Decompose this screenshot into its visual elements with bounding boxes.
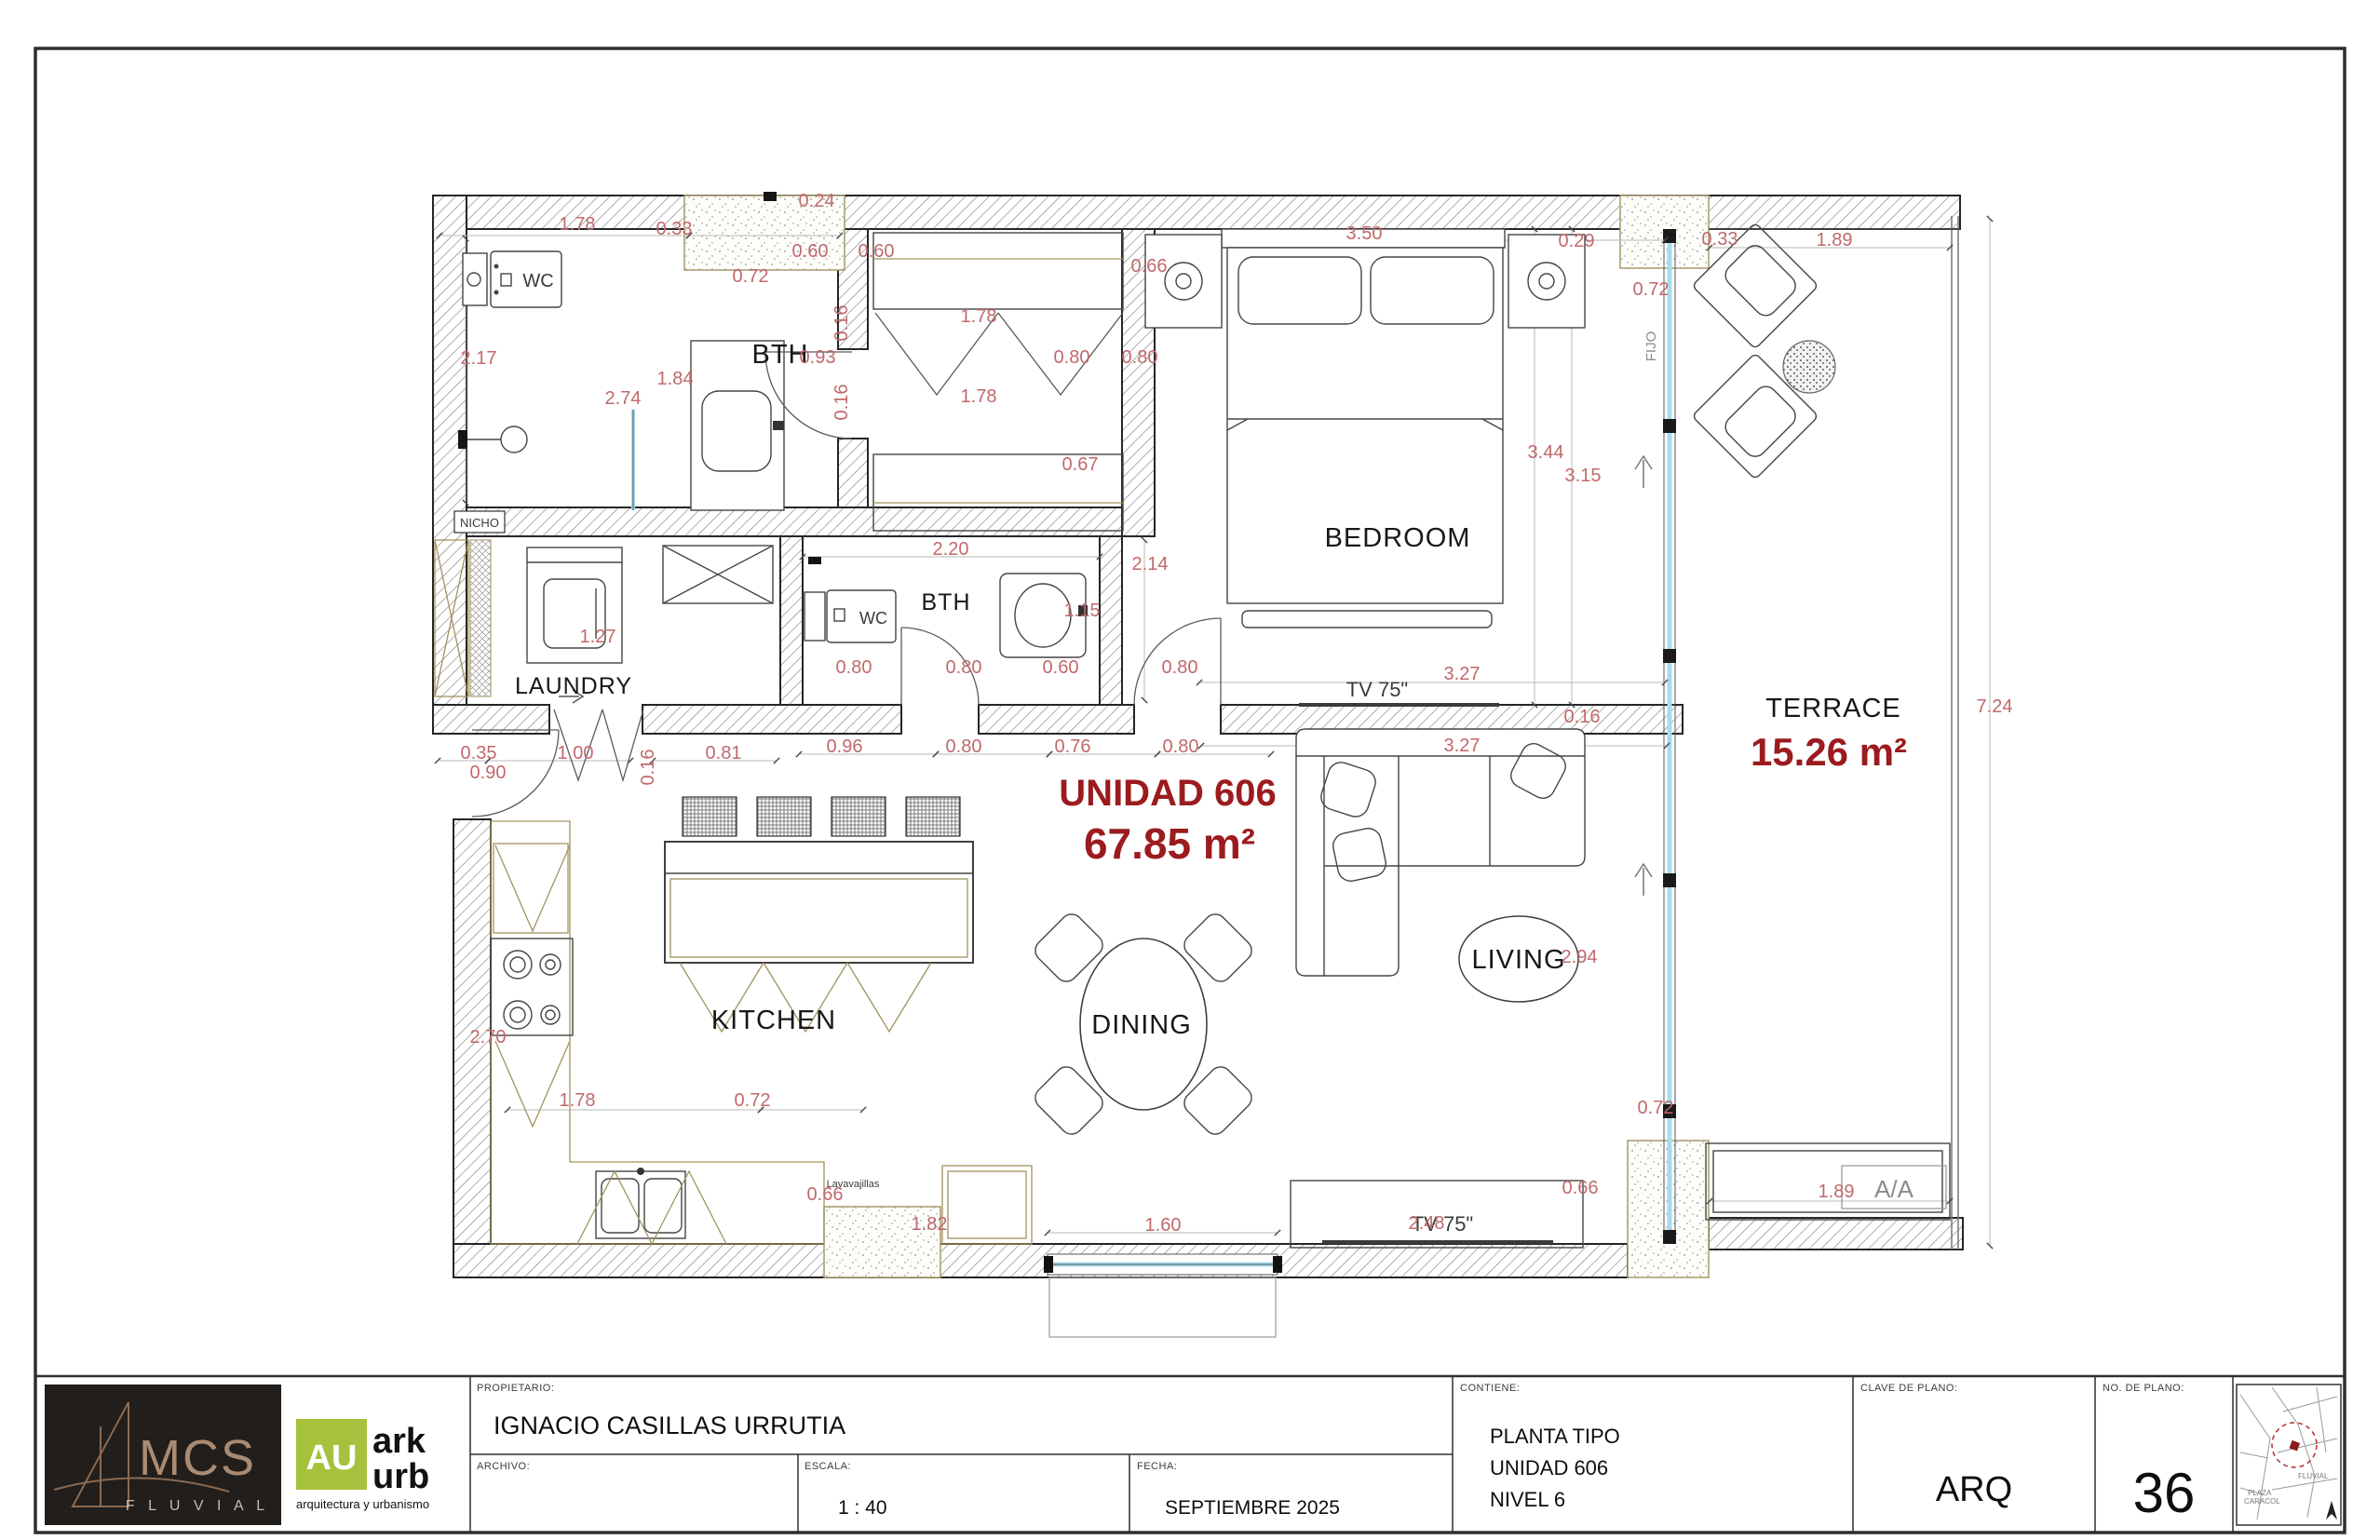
dimension-label: 0.72 [733,266,769,287]
dimension-label: 0.16 [832,385,852,421]
site-map: PLAZA CARACOL FLUVIAL [2237,1385,2341,1525]
mcs-logo: MCS F L U V I A L [45,1385,281,1525]
dimension-label: 0.33 [656,219,693,239]
dimension-label: 0.76 [1055,736,1091,757]
room-label-living: LIVING [1471,945,1565,975]
arkurb-word-2: urb [372,1457,429,1496]
numero-label: NO. DE PLANO: [2103,1383,2184,1394]
dimension-label: 0.66 [1131,256,1168,277]
dimension-label: 1.89 [1817,230,1853,250]
dimension-label: 0.72 [1633,279,1670,300]
dimension-label: 1.78 [560,1090,596,1111]
dimension-label: 0.80 [946,736,982,757]
propietario-label: PROPIETARIO: [477,1383,554,1394]
dimension-label: 0.80 [1122,347,1158,368]
dimension-label: 0.16 [1564,707,1601,727]
dimension-label: 2.14 [1132,554,1169,574]
nicho-label: NICHO [460,516,499,530]
dimension-label: 3.27 [1444,736,1481,756]
dimension-label: 1.78 [961,386,997,407]
dimension-label: 0.16 [832,305,852,342]
dimension-label: 0.16 [638,750,658,786]
dimension-label: 0.60 [1043,657,1079,678]
dimension-label: 3.44 [1528,442,1564,463]
dimension-label: 2.74 [605,388,642,409]
room-label-bth-mid: BTH [922,589,971,615]
dimension-label: 1.60 [1145,1215,1182,1236]
dimension-label: 1.78 [560,214,596,235]
dimension-label: 0.66 [1562,1178,1599,1198]
dimension-label: 2.48 [1409,1213,1445,1234]
room-label-bedroom: BEDROOM [1325,523,1471,553]
dimension-label: 3.50 [1346,223,1383,244]
dimension-label: 0.96 [827,736,863,757]
dimension-label: 2.70 [470,1027,507,1047]
drawing-sheet: BTH BTH BEDROOM LAUNDRY KITCHEN DINING L… [0,0,2380,1540]
propietario-value: IGNACIO CASILLAS URRUTIA [494,1412,845,1439]
mcs-logo-text: MCS [139,1430,256,1486]
room-label-terrace: TERRACE [1765,694,1901,723]
archivo-label: ARCHIVO: [477,1461,530,1472]
dimension-label: 0.72 [1638,1098,1674,1118]
unit-title: UNIDAD 606 [1059,773,1276,814]
dimension-label: 0.24 [799,191,835,211]
dimension-label: 0.93 [800,347,836,368]
room-label-laundry: LAUNDRY [515,673,632,699]
dimension-label: 0.80 [1162,657,1198,678]
map-label-plaza: PLAZA [2248,1489,2272,1497]
fecha-value: SEPTIEMBRE 2025 [1165,1497,1340,1519]
numero-value: 36 [2133,1462,2196,1524]
ac-label: A/A [1874,1175,1914,1203]
wc-label-top: WC [522,271,553,291]
map-label-fluvial: FLUVIAL [2298,1472,2329,1480]
escala-label: ESCALA: [805,1461,851,1472]
dimension-label: 0.90 [470,763,507,783]
fijo-label: FIJO [1643,331,1659,362]
dimension-label: 0.81 [706,743,742,763]
dimension-label: 1.84 [657,369,694,389]
contiene-line-1: PLANTA TIPO [1490,1425,1620,1448]
arkurb-logo: AU ark urb arquitectura y urbanismo [296,1419,429,1511]
dimension-label: 0.35 [461,743,497,763]
dimension-label: 0.67 [1062,454,1099,475]
dimension-label: 2.20 [933,539,969,560]
floor-plan-svg: BTH BTH BEDROOM LAUNDRY KITCHEN DINING L… [0,0,2380,1540]
dimension-label: 2.17 [461,348,497,369]
contiene-label: CONTIENE: [1460,1383,1520,1394]
contiene-line-2: UNIDAD 606 [1490,1456,1608,1479]
dimension-label: 1.78 [961,306,997,327]
dimension-label: 0.80 [946,657,982,678]
fecha-label: FECHA: [1137,1461,1177,1472]
dimension-label: 0.80 [836,657,872,678]
mcs-logo-sub: F L U V I A L [126,1498,269,1514]
dimension-label: 0.80 [1163,736,1199,757]
room-label-dining: DINING [1091,1010,1192,1040]
dimension-label: 0.72 [735,1090,771,1111]
arkurb-tagline: arquitectura y urbanismo [296,1497,429,1511]
unit-area: 67.85 m² [1084,819,1255,868]
dimension-label: 1.15 [1064,601,1101,621]
clave-value: ARQ [1936,1470,2012,1509]
contiene-line-3: NIVEL 6 [1490,1488,1565,1511]
room-label-kitchen: KITCHEN [711,1006,836,1035]
dimension-label: 1.00 [558,743,594,763]
arkurb-monogram: AU [306,1439,358,1478]
sheet-background [0,0,2380,1540]
map-label-caracol: CARACOL [2244,1497,2280,1506]
dimension-label: 0.60 [792,241,829,262]
tv-bedroom-label: TV 75" [1346,678,1409,701]
dimension-label: 1.27 [580,627,616,647]
dimension-label: 7.24 [1977,696,2013,717]
dimension-label: 2.94 [1562,947,1598,967]
clave-label: CLAVE DE PLANO: [1860,1383,1958,1394]
dimension-label: 0.60 [859,241,895,262]
terrace-area: 15.26 m² [1751,730,1907,774]
wc-label-mid: WC [859,609,887,628]
dimension-label: 0.66 [807,1184,844,1205]
dimension-label: 1.82 [912,1214,948,1235]
dimension-label: 3.15 [1565,466,1602,486]
dimension-label: 1.89 [1819,1182,1855,1202]
escala-value: 1 : 40 [838,1497,887,1519]
dimension-label: 0.29 [1559,231,1595,251]
dimension-label: 0.33 [1702,229,1738,250]
dimension-label: 0.80 [1054,347,1090,368]
dimension-label: 3.27 [1444,664,1481,684]
arkurb-word-1: ark [372,1422,426,1461]
